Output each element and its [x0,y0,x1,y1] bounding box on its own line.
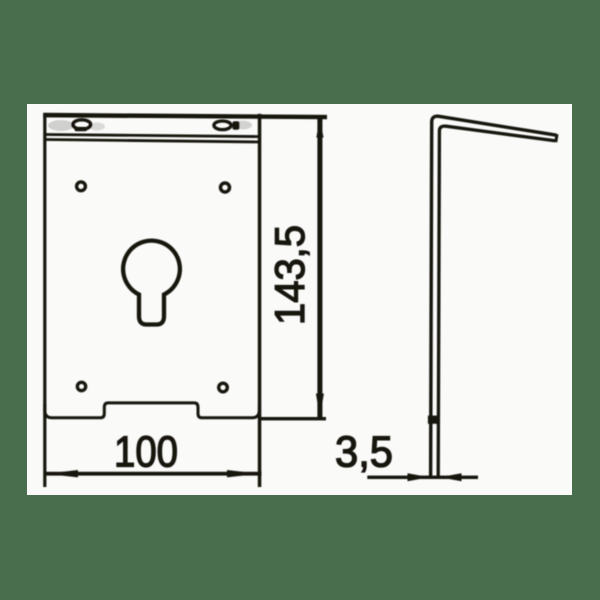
svg-text:143,5: 143,5 [266,225,313,325]
svg-text:3,5: 3,5 [335,429,393,477]
svg-text:100: 100 [114,429,178,477]
